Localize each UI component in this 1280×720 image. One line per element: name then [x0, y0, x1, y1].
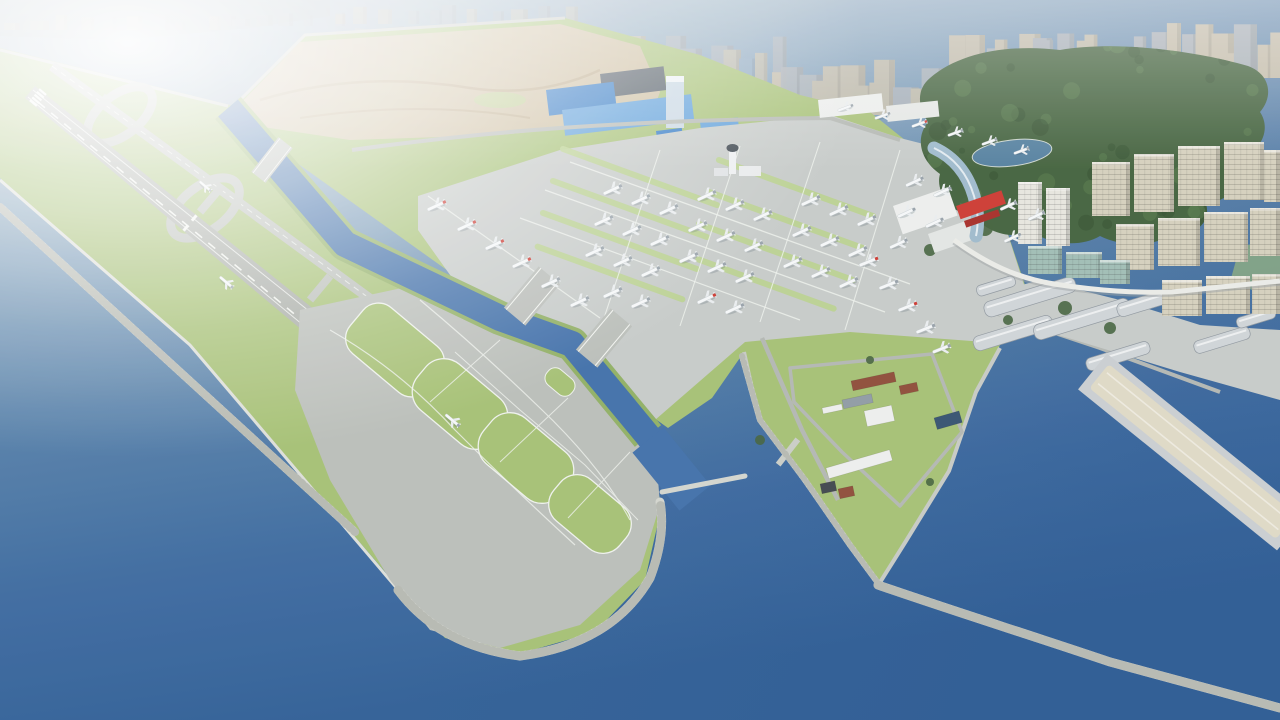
render-canvas: 3D aerial rendering of a coastal airport…	[0, 0, 1280, 720]
airport-aerial-render: 3D aerial rendering of a coastal airport…	[0, 0, 1280, 720]
haze	[0, 0, 1280, 720]
haze-veil	[0, 0, 1280, 720]
